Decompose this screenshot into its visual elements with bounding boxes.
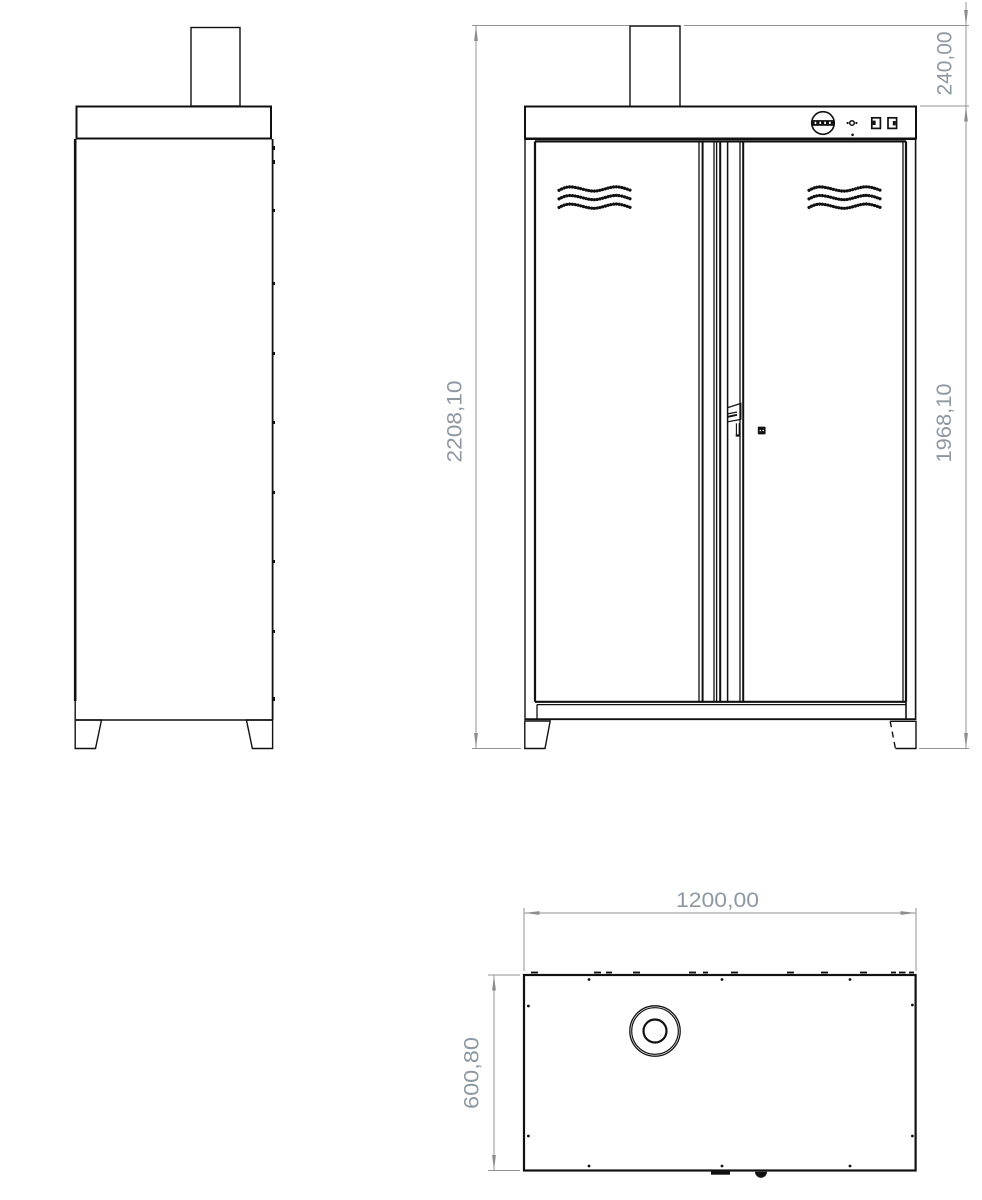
svg-text:1968,10: 1968,10 xyxy=(932,383,956,462)
svg-text:240,00: 240,00 xyxy=(933,31,957,95)
svg-text:1200,00: 1200,00 xyxy=(676,888,759,912)
svg-text:600,80: 600,80 xyxy=(460,1037,484,1109)
svg-text:2208,10: 2208,10 xyxy=(443,380,467,462)
